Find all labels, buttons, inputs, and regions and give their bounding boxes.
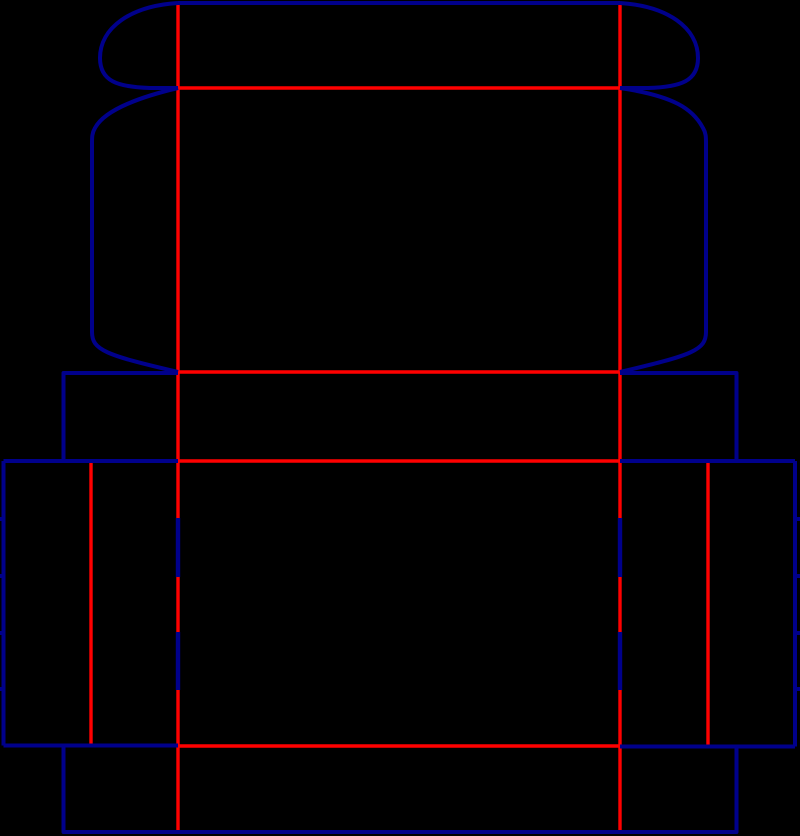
dieline-svg	[0, 0, 800, 836]
lid-right-wing-edge	[620, 88, 706, 372]
collar-right-edge	[620, 373, 737, 461]
collar-left-edge	[64, 373, 179, 461]
lid-tuck-right-ear	[620, 3, 698, 88]
lid-left-wing-edge	[92, 88, 178, 372]
dieline-canvas	[0, 0, 800, 836]
lid-tuck-left-ear	[100, 3, 178, 88]
bottom-flap-outline	[64, 746, 737, 833]
